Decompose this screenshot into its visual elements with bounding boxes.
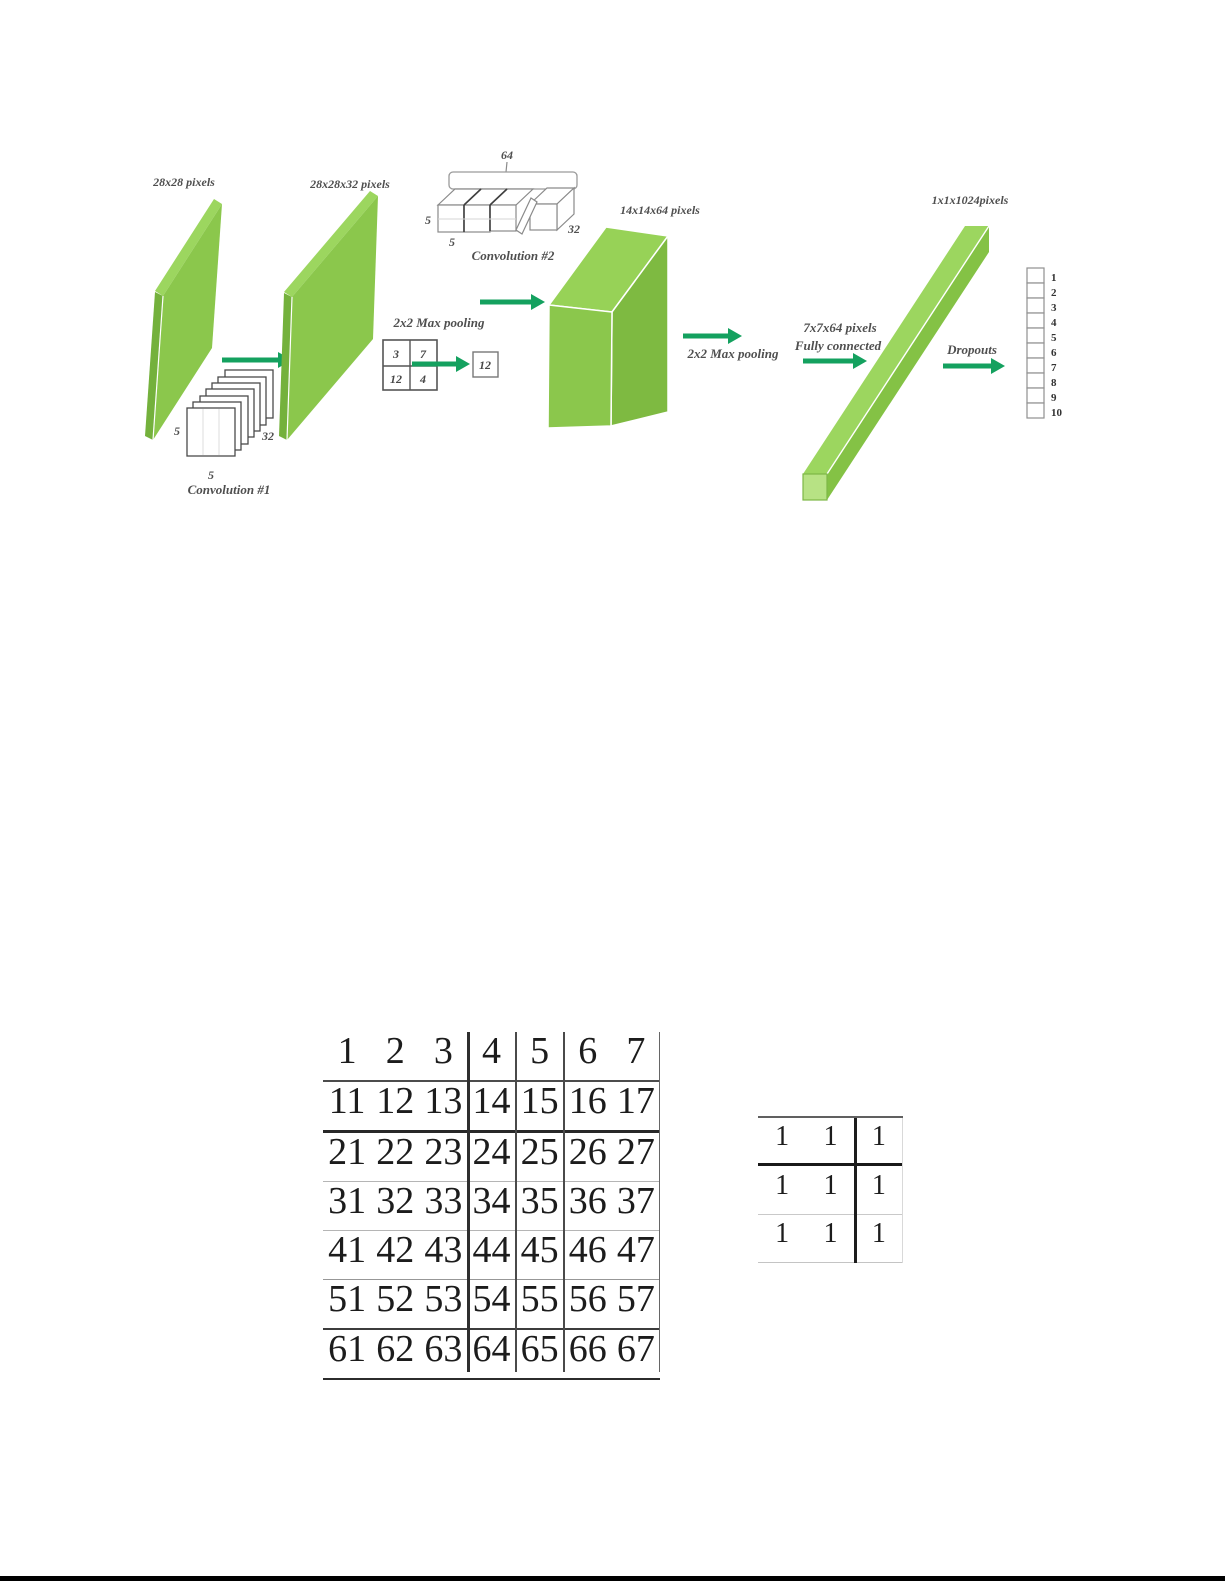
input-layer-label: 28x28 pixels	[152, 175, 215, 189]
table-row: 1 2 3 4 5 6 7	[323, 1032, 660, 1082]
table-cell: 31	[323, 1182, 371, 1230]
table-cell: 24	[467, 1133, 515, 1181]
kernel-right-border	[902, 1118, 903, 1263]
output-unit-label: 4	[1051, 317, 1057, 329]
table-cell: 1	[806, 1118, 854, 1163]
pool1-cell-value: 3	[392, 347, 399, 361]
table-cell: 42	[371, 1231, 419, 1279]
table-row: 41 42 43 44 45 46 47	[323, 1231, 660, 1280]
fc-label: Fully connected	[794, 338, 882, 353]
table-cell: 1	[855, 1118, 903, 1163]
conv2-filter-count-label: 64	[501, 148, 513, 162]
table-cell: 27	[612, 1133, 660, 1181]
pool2-label: 2x2 Max pooling	[686, 346, 779, 361]
matrix-column-divider	[563, 1032, 565, 1372]
output-unit-label: 8	[1051, 377, 1057, 389]
conv2-depth-label: 32	[567, 222, 580, 236]
output-unit-label: 6	[1051, 347, 1057, 359]
conv2-output-label: 14x14x64 pixels	[620, 203, 700, 217]
table-cell: 51	[323, 1280, 371, 1328]
table-row: 31 32 33 34 35 36 37	[323, 1182, 660, 1231]
pool1-cell-value: 4	[419, 372, 426, 386]
table-cell: 1	[758, 1118, 806, 1163]
table-cell: 1	[855, 1215, 903, 1262]
table-cell: 45	[516, 1231, 564, 1279]
pool1-result-box: 12	[473, 352, 498, 377]
dropout-label: Dropouts	[946, 342, 997, 357]
conv1-kernel-stack	[187, 370, 273, 456]
table-cell: 15	[516, 1082, 564, 1130]
table-cell: 16	[564, 1082, 612, 1130]
table-cell: 26	[564, 1133, 612, 1181]
output-unit-label: 1	[1051, 272, 1057, 284]
table-cell: 65	[516, 1330, 564, 1378]
conv1-output-label: 28x28x32 pixels	[309, 177, 390, 191]
table-cell: 1	[855, 1166, 903, 1213]
table-cell: 41	[323, 1231, 371, 1279]
conv1-depth-label: 32	[261, 429, 274, 443]
table-cell: 34	[467, 1182, 515, 1230]
conv1-kernel-height-label: 5	[174, 424, 180, 438]
table-cell: 53	[419, 1280, 467, 1328]
table-cell: 56	[564, 1280, 612, 1328]
table-cell: 7	[612, 1032, 660, 1080]
conv2-kernel-width-label: 5	[449, 235, 455, 249]
table-cell: 12	[371, 1082, 419, 1130]
table-cell: 25	[516, 1133, 564, 1181]
output-unit-label: 7	[1051, 362, 1057, 374]
table-cell: 1	[806, 1166, 854, 1213]
table-cell: 67	[612, 1330, 660, 1378]
table-cell: 6	[564, 1032, 612, 1080]
table-cell: 1	[758, 1215, 806, 1262]
output-unit-label: 2	[1051, 287, 1057, 299]
table-cell: 37	[612, 1182, 660, 1230]
table-cell: 57	[612, 1280, 660, 1328]
pool1-cell-value: 12	[390, 372, 402, 386]
output-unit-label: 3	[1051, 302, 1057, 314]
arrow-fc-icon	[803, 353, 867, 369]
matrix-right-border	[659, 1032, 661, 1372]
table-cell: 3	[419, 1032, 467, 1080]
table-cell: 21	[323, 1133, 371, 1181]
table-cell: 1	[323, 1032, 371, 1080]
conv2-output-box	[548, 227, 668, 428]
table-row: 51 52 53 54 55 56 57	[323, 1280, 660, 1330]
kernel-column-divider	[854, 1118, 857, 1263]
table-cell: 54	[467, 1280, 515, 1328]
output-units-column: 1 2 3 4 5 6 7 8 9 10	[1027, 268, 1063, 419]
arrow-conv2-icon	[480, 294, 545, 310]
table-row: 1 1 1	[758, 1118, 903, 1166]
document-page: 28x28 pixels 5 5 32 Convolution #1	[0, 0, 1225, 1585]
arrow-pool2-icon	[683, 328, 742, 344]
table-cell: 22	[371, 1133, 419, 1181]
pool1-result-value: 12	[479, 358, 491, 372]
table-row: 1 1 1	[758, 1215, 903, 1263]
table-cell: 36	[564, 1182, 612, 1230]
table-cell: 61	[323, 1330, 371, 1378]
table-row: 11 12 13 14 15 16 17	[323, 1082, 660, 1133]
table-cell: 62	[371, 1330, 419, 1378]
table-cell: 63	[419, 1330, 467, 1378]
matrix-column-divider	[467, 1032, 470, 1372]
table-cell: 11	[323, 1082, 371, 1130]
arrow-dropout-icon	[943, 358, 1005, 374]
conv2-kernel-height-label: 5	[425, 213, 431, 227]
table-cell: 35	[516, 1182, 564, 1230]
pool1-label: 2x2 Max pooling	[392, 315, 485, 330]
cnn-architecture-diagram: 28x28 pixels 5 5 32 Convolution #1	[0, 0, 1225, 560]
pool1-cell-value: 7	[420, 347, 427, 361]
table-cell: 23	[419, 1133, 467, 1181]
fc-layer-label: 1x1x1024pixels	[932, 193, 1009, 207]
kernel-matrix-table: 1 1 1 1 1 1 1 1 1	[758, 1116, 903, 1263]
output-unit-label: 10	[1051, 407, 1063, 419]
conv1-label: Convolution #1	[188, 482, 271, 497]
table-cell: 4	[467, 1032, 515, 1080]
table-cell: 46	[564, 1231, 612, 1279]
conv2-filter-bank: 64	[438, 148, 577, 234]
table-cell: 52	[371, 1280, 419, 1328]
output-unit-label: 5	[1051, 332, 1057, 344]
table-cell: 64	[467, 1330, 515, 1378]
fc-size-label: 7x7x64 pixels	[803, 320, 876, 335]
table-cell: 44	[467, 1231, 515, 1279]
output-unit-label: 9	[1051, 392, 1057, 404]
image-matrix-table: 1 2 3 4 5 6 7 11 12 13 14 15 16 17 21 22…	[323, 1032, 660, 1372]
table-cell: 14	[467, 1082, 515, 1130]
table-cell: 5	[516, 1032, 564, 1080]
table-row: 61 62 63 64 65 66 67	[323, 1330, 660, 1380]
conv1-kernel-width-label: 5	[208, 468, 214, 482]
table-cell: 33	[419, 1182, 467, 1230]
table-cell: 2	[371, 1032, 419, 1080]
table-cell: 47	[612, 1231, 660, 1279]
table-cell: 13	[419, 1082, 467, 1130]
table-row: 21 22 23 24 25 26 27	[323, 1133, 660, 1182]
table-cell: 1	[806, 1215, 854, 1262]
conv2-label: Convolution #2	[472, 248, 555, 263]
table-cell: 66	[564, 1330, 612, 1378]
conv1-output-slab	[279, 191, 378, 440]
table-cell: 43	[419, 1231, 467, 1279]
matrix-column-divider	[515, 1032, 517, 1372]
table-row: 1 1 1	[758, 1166, 903, 1214]
table-cell: 32	[371, 1182, 419, 1230]
table-cell: 1	[758, 1166, 806, 1213]
table-cell: 17	[612, 1082, 660, 1130]
table-cell: 55	[516, 1280, 564, 1328]
page-bottom-rule	[0, 1576, 1225, 1581]
